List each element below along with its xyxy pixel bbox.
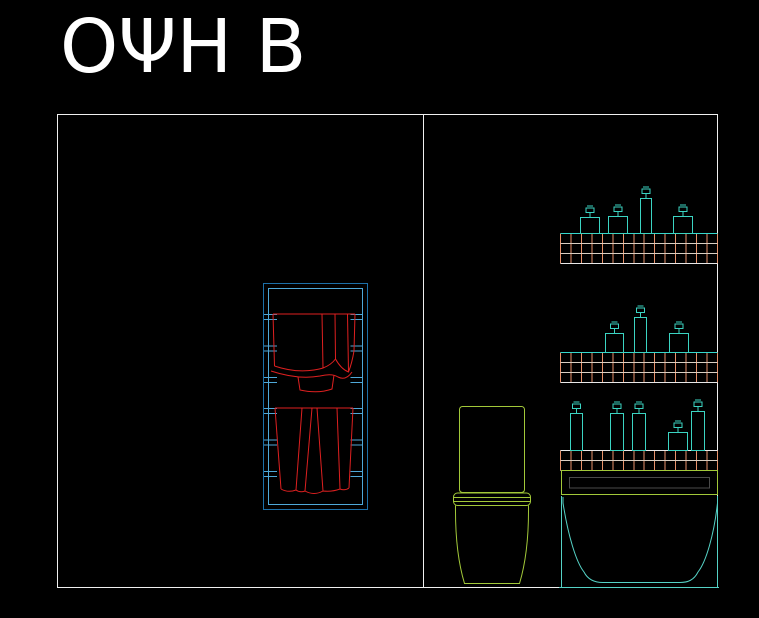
pump-cap bbox=[586, 208, 594, 213]
pump-cap bbox=[614, 207, 622, 212]
pump-cap bbox=[675, 324, 683, 329]
pump-cap bbox=[635, 404, 643, 409]
towel-top[interactable] bbox=[271, 314, 355, 392]
room-rect bbox=[58, 115, 718, 588]
bottle[interactable] bbox=[674, 205, 693, 234]
bottle[interactable] bbox=[571, 402, 583, 451]
bottle-body bbox=[669, 433, 688, 451]
pump-cap bbox=[573, 404, 581, 409]
pump-cap bbox=[694, 402, 702, 407]
tub-apron-frame bbox=[562, 471, 718, 495]
bottle[interactable] bbox=[670, 322, 689, 353]
pump-cap bbox=[613, 404, 621, 409]
pump-cap bbox=[674, 423, 682, 428]
bottle-body bbox=[670, 334, 689, 353]
bottle[interactable] bbox=[606, 322, 624, 353]
towel-rack-inner-frame bbox=[269, 289, 363, 505]
towel-bottom[interactable] bbox=[275, 408, 353, 494]
bottle[interactable] bbox=[692, 400, 705, 451]
bathtub[interactable] bbox=[559, 496, 719, 588]
bottle-body bbox=[571, 414, 583, 451]
toilet-seat bbox=[454, 493, 531, 506]
pump-cap bbox=[637, 308, 645, 313]
room-outline[interactable] bbox=[58, 115, 718, 588]
bottle[interactable] bbox=[609, 205, 628, 234]
bottle-body bbox=[633, 414, 646, 451]
bottle[interactable] bbox=[669, 421, 688, 451]
cad-canvas: ΟΨΗ Β bbox=[0, 0, 759, 618]
towel-rack-outer-frame bbox=[264, 284, 368, 510]
elevation-drawing: ΟΨΗ Β bbox=[0, 0, 759, 618]
tiled-shelf-2[interactable] bbox=[561, 353, 718, 383]
bottle-body bbox=[635, 318, 647, 353]
bottle[interactable] bbox=[581, 206, 600, 234]
pump-cap bbox=[679, 207, 687, 212]
towel-bottom-outline bbox=[275, 408, 353, 494]
pump-cap bbox=[611, 324, 619, 329]
bottle[interactable] bbox=[641, 187, 652, 234]
bottle-body bbox=[581, 218, 600, 234]
bottle-body bbox=[641, 199, 652, 234]
tiled-shelf-3[interactable] bbox=[561, 451, 718, 471]
tub-apron-inner bbox=[570, 478, 710, 489]
bottles-layer bbox=[571, 187, 705, 451]
toilet-base bbox=[455, 506, 528, 584]
toilet[interactable] bbox=[454, 407, 531, 584]
bottle-body bbox=[606, 334, 624, 353]
bottle-body bbox=[692, 412, 705, 451]
towel-top-outline bbox=[271, 314, 355, 392]
pump-cap bbox=[642, 189, 650, 194]
tub-basin bbox=[563, 497, 718, 583]
view-title: ΟΨΗ Β bbox=[60, 4, 306, 90]
bottle-body bbox=[674, 217, 693, 234]
bottle[interactable] bbox=[611, 402, 624, 451]
bottle-body bbox=[611, 414, 624, 451]
bottle[interactable] bbox=[635, 306, 647, 353]
bottle[interactable] bbox=[633, 402, 646, 451]
bottle-body bbox=[609, 217, 628, 234]
toilet-tank bbox=[460, 407, 525, 493]
tiled-shelf-1[interactable] bbox=[561, 234, 718, 264]
towel-rack[interactable] bbox=[264, 284, 368, 510]
tub-apron[interactable] bbox=[562, 471, 718, 495]
